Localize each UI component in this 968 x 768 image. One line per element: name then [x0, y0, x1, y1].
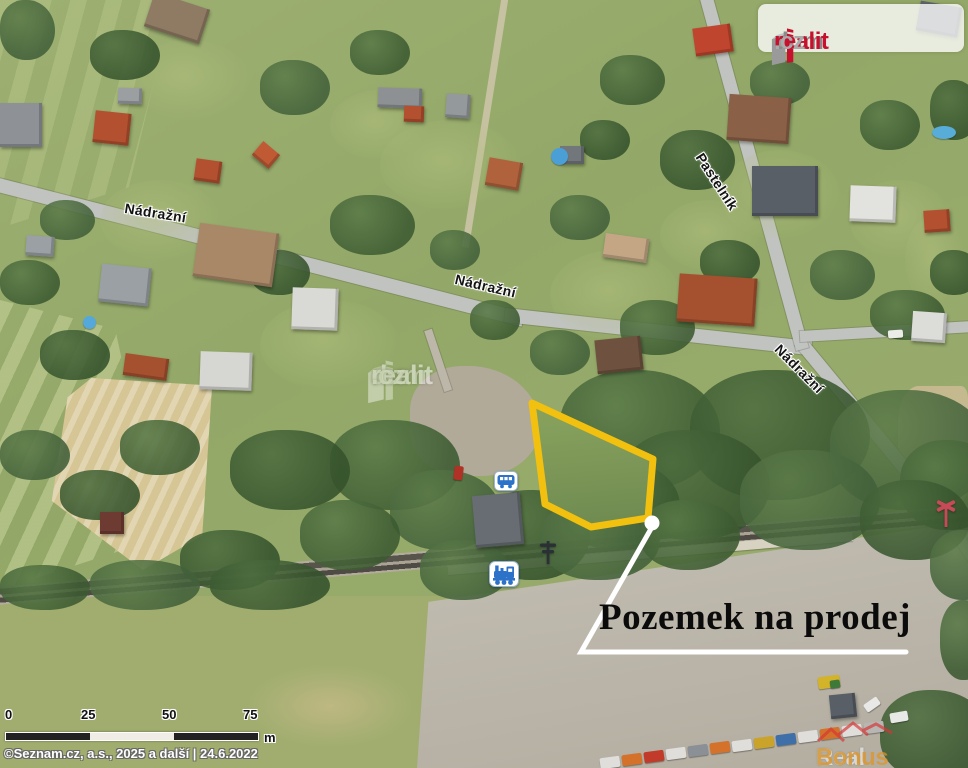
- aerial-map: Nádražní Nádražní Pastelník Nádražní Poz…: [0, 0, 968, 768]
- scale-tick-0: 0: [5, 707, 12, 722]
- dumrealit-logo: dumrealit.cz: [758, 4, 964, 52]
- plot-outline: [532, 403, 653, 527]
- scale-bar: [5, 732, 259, 741]
- scale-tick-75: 75: [243, 707, 257, 722]
- scale-unit-label: m: [264, 730, 276, 745]
- map-attribution: ©Seznam.cz, a.s., 2025 a další | 24.6.20…: [4, 746, 258, 761]
- realbonus-roofs-icon: [816, 720, 904, 744]
- callout-anchor-dot: [645, 516, 660, 531]
- scale-tick-25: 25: [81, 707, 95, 722]
- scale-tick-50: 50: [162, 707, 176, 722]
- realbonus-text-bonus: Bonus: [816, 744, 888, 768]
- realbonus-watermark: RealBonus: [816, 720, 904, 744]
- watermark-text-cz: .cz: [371, 360, 406, 391]
- logo-text-cz: .cz: [774, 28, 805, 56]
- plot-annotation-label: Pozemek na prodej: [599, 596, 911, 639]
